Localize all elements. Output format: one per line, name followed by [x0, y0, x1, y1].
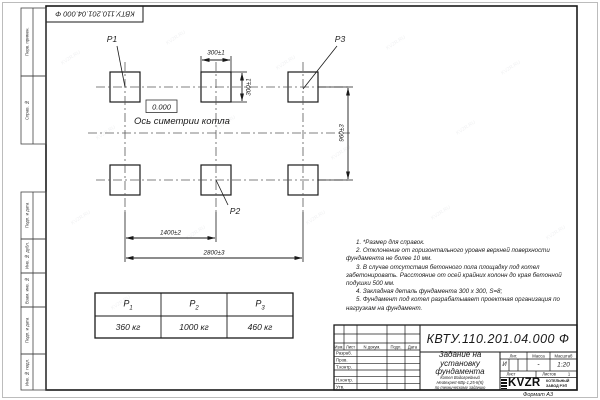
subtitle-line: по техническому заданию [421, 386, 499, 391]
kvzr-logo-mark [501, 379, 507, 390]
load-table-header-p2: Р2 [189, 299, 198, 312]
note-1: 1. *Размер для справок. [346, 239, 577, 247]
tb-sheets-value: 1 [568, 372, 570, 377]
pad-label-p2: Р2 [230, 206, 240, 216]
tb-col-data: Дата [408, 344, 417, 349]
tb-row-tkontr: Т.контр. [336, 364, 352, 369]
tb-sheets-label: Листов [542, 372, 556, 377]
dim-row-spacing: 960±3 [339, 124, 346, 141]
tb-mass-label: Масса [532, 353, 544, 358]
dim-pad-width: 300±1 [207, 49, 224, 56]
title-block-doc-number: КВТУ.110.201.04.000 Ф [427, 332, 570, 346]
tb-row-prov: Пров. [336, 358, 348, 363]
tb-row-utv: Утв. [336, 384, 344, 389]
drawing-sheet: KVZR.RU KVZR.RU KVZR.RU KVZR.RU KVZR.RU … [0, 0, 600, 400]
load-value-p3: 460 кг [248, 322, 273, 332]
tb-lit-value: И [502, 362, 506, 368]
tb-row-razrab: Разраб. [336, 351, 352, 356]
note-3: 3. В случае отсутствия бетонного пола пл… [346, 264, 577, 289]
margin-stamp-label: Подп. и дата [21, 192, 33, 239]
tb-col-list: Лист [346, 344, 355, 349]
margin-stamp-label: Справ. № [21, 76, 33, 144]
foundation-pads [110, 72, 318, 195]
company-name: КОТЕЛЬНЫЙ ЗАВОД РЭП [546, 379, 569, 388]
notes-block: 1. *Размер для справок. 2. Отклонение от… [346, 239, 577, 313]
tb-scale-label: Масштаб [555, 353, 573, 358]
tb-col-izm: Изм. [335, 344, 344, 349]
margin-stamp-label: Инв. № дубл. [21, 239, 33, 273]
symmetry-axis-label: Ось симетрии котла [134, 116, 230, 127]
load-value-p1: 360 кг [116, 322, 141, 332]
load-table-header-p1: Р1 [123, 299, 132, 312]
load-table-header-p3: Р3 [255, 299, 264, 312]
margin-stamp-label: Подп. и дата [21, 307, 33, 354]
tb-row-nkontr: Н.контр. [336, 378, 353, 383]
centerlines [88, 62, 350, 212]
company-line: ЗАВОД РЭП [546, 384, 569, 389]
tb-lit-label: Лит. [510, 353, 518, 358]
margin-stamp-label: Перв. примен. [21, 8, 33, 76]
note-5: 5. Фундамент под котел разрабатывает про… [346, 296, 577, 312]
load-value-p2: 1000 кг [179, 322, 208, 332]
kvzr-logo-text: KVZR [508, 377, 541, 389]
note-2: 2. Отклонение от горизонтального уровня … [346, 247, 577, 263]
note-4: 4. Закладная деталь фундамента 300 х 300… [346, 288, 577, 296]
title-block-title: Задание на установку фундамента [421, 352, 499, 376]
dim-pad-height: 300±1 [245, 78, 252, 95]
title-block-subtitle: Котел Водогрейный Heatexpert-КВр-1,25-К(… [421, 376, 499, 390]
margin-stamp-label: Взам. инв. № [21, 273, 33, 307]
pad-label-p3: Р3 [335, 34, 345, 44]
tb-scale-value: 1:20 [557, 362, 570, 369]
margin-stamp-label: Инв. № подл. [21, 354, 33, 390]
company-line: КОТЕЛЬНЫЙ [546, 379, 569, 384]
tb-mass-value: - [537, 362, 539, 369]
tb-col-docum: N докум. [364, 344, 381, 349]
dim-total-span: 2800±3 [204, 249, 225, 256]
elevation-mark: 0.000 [152, 102, 171, 111]
format-label: Формат А3 [523, 392, 553, 398]
tb-col-podp: Подп. [390, 344, 401, 349]
pad-label-p1: Р1 [107, 34, 117, 44]
dim-mid-span: 1400±2 [160, 229, 181, 236]
doc-number-top: КВТУ.110.201.04.000 Ф [55, 10, 134, 19]
